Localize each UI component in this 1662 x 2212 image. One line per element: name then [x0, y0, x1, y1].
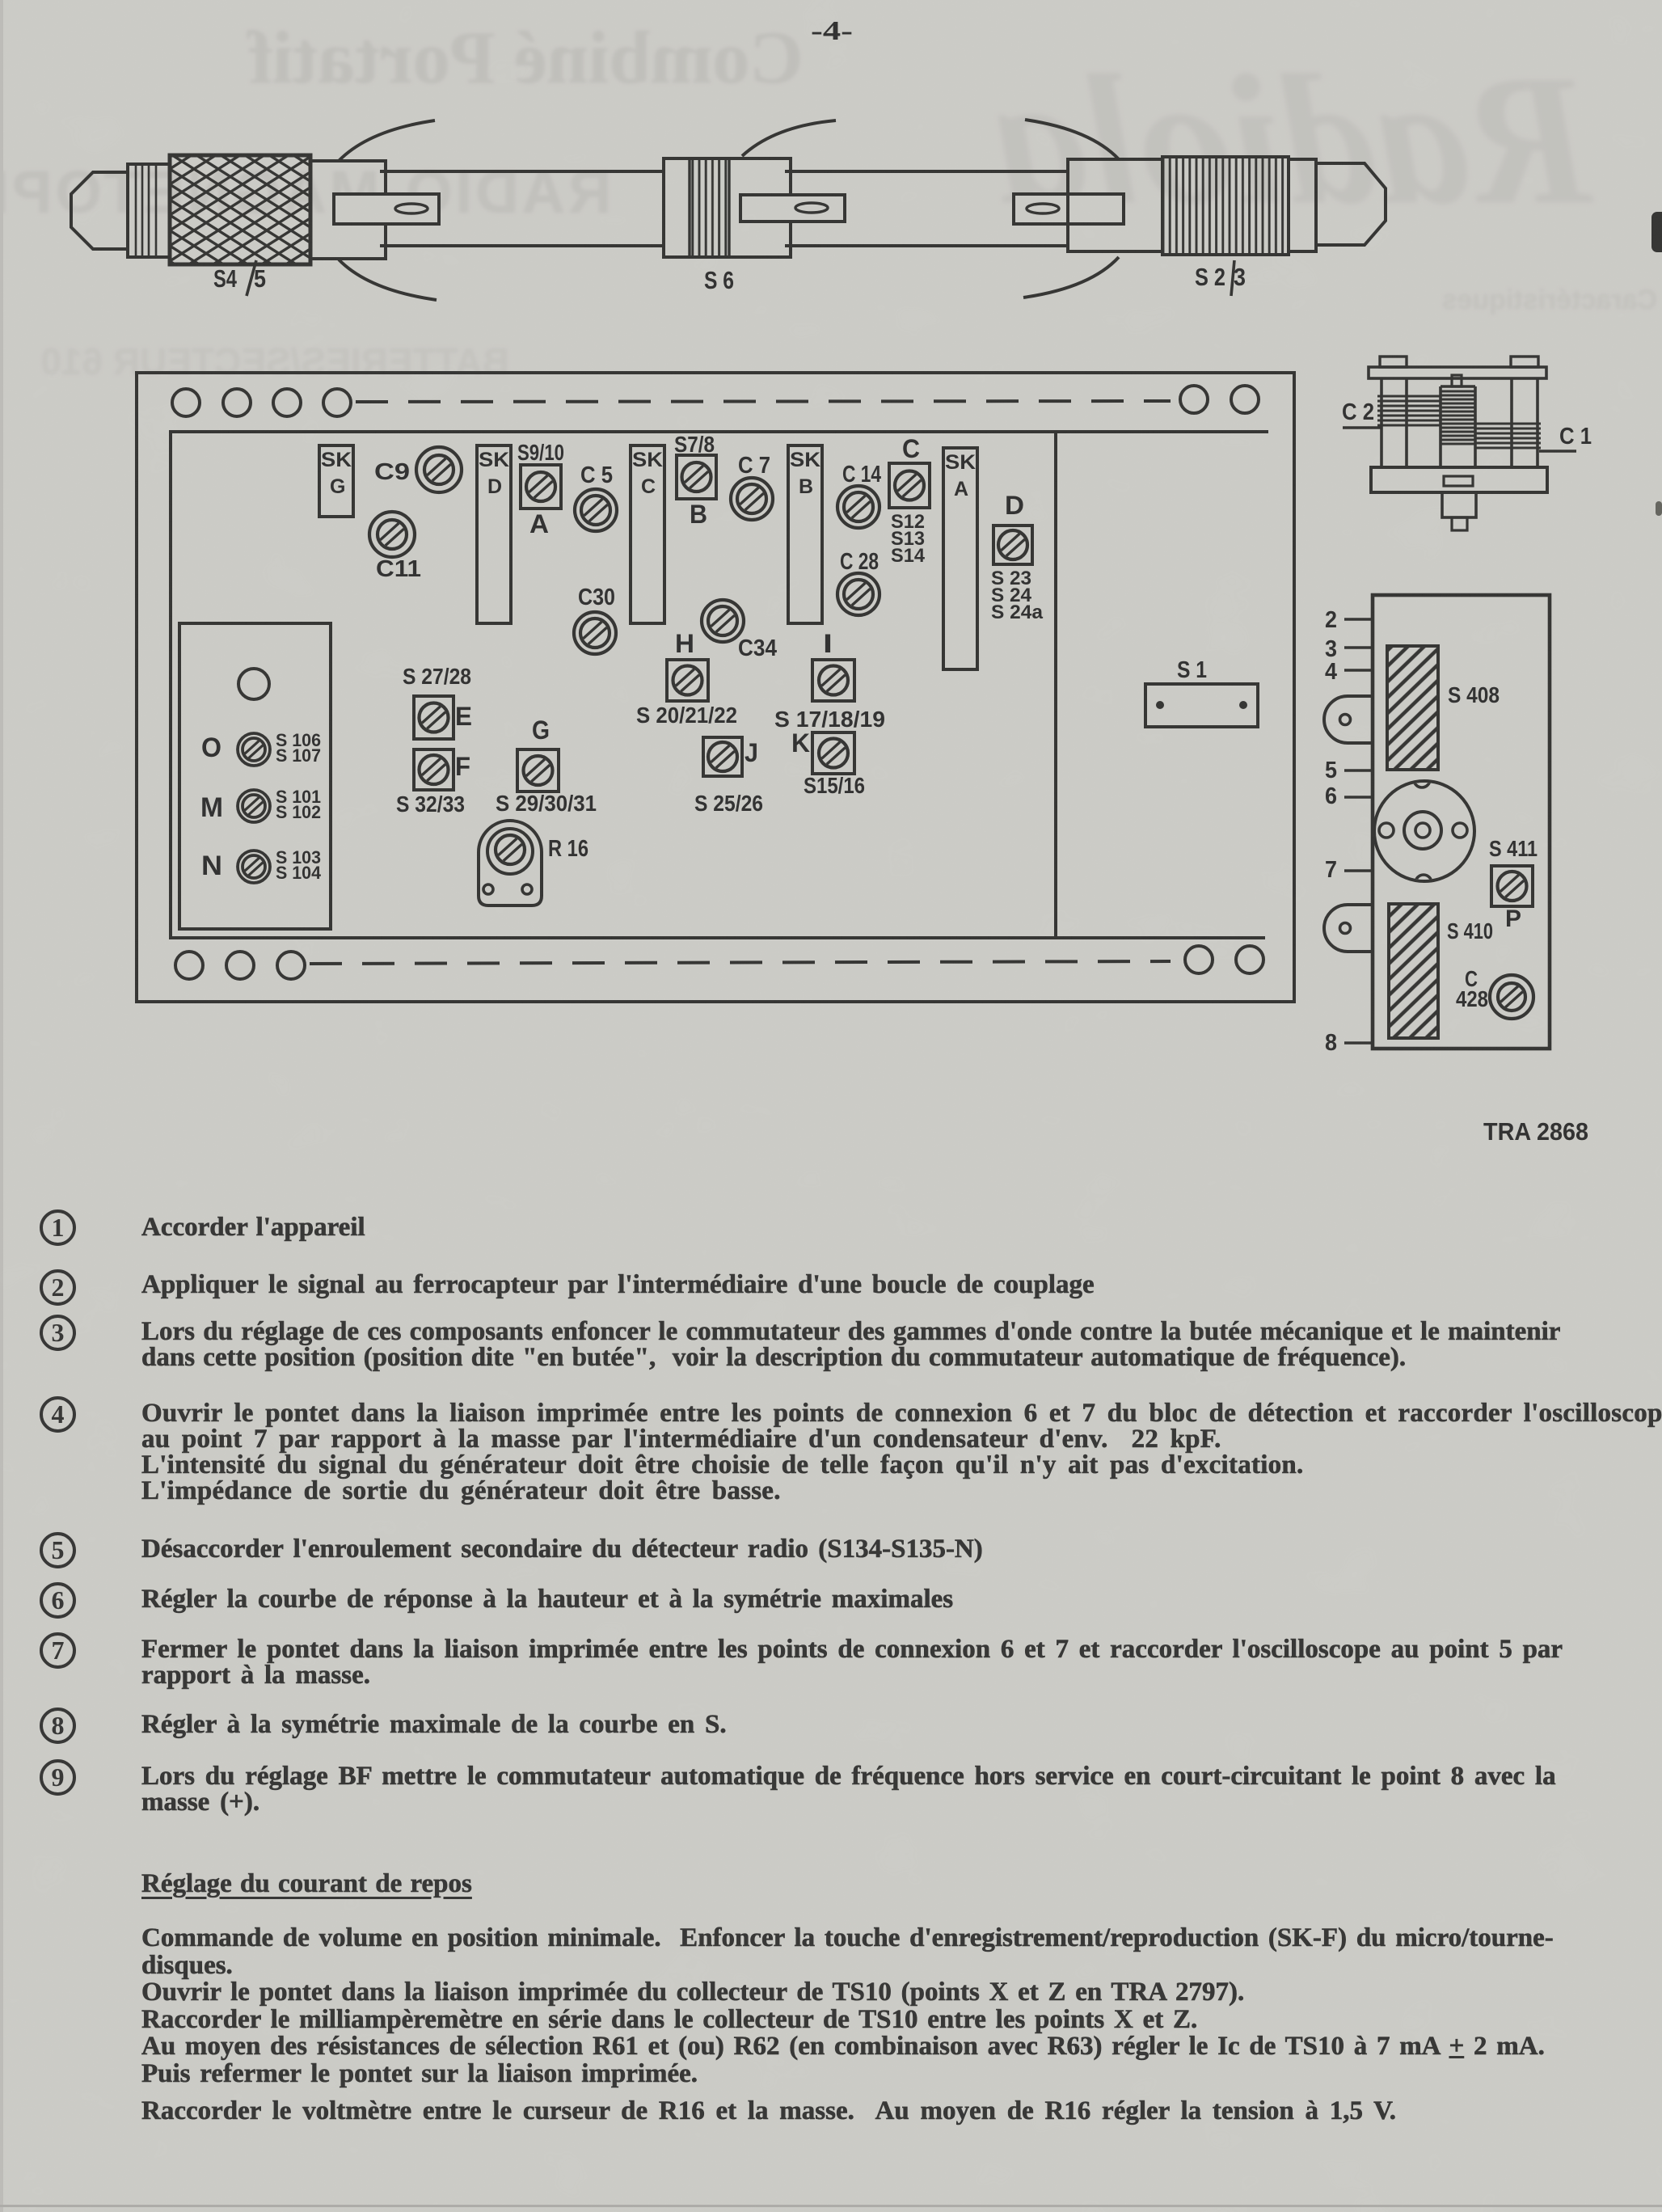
svg-text:S 20/21/22: S 20/21/22	[636, 703, 737, 728]
svg-text:2: 2	[1325, 607, 1337, 633]
svg-text:S 6: S 6	[704, 266, 734, 294]
svg-text:7: 7	[1325, 857, 1337, 883]
svg-text:C 14: C 14	[842, 462, 881, 488]
svg-text:K: K	[791, 728, 810, 758]
svg-text:S 24a: S 24a	[991, 602, 1044, 623]
svg-text:C 5: C 5	[580, 462, 613, 488]
svg-text:8: 8	[1325, 1030, 1337, 1056]
svg-text:-4-: -4-	[811, 16, 853, 46]
svg-text:C34: C34	[738, 635, 777, 661]
svg-text:S 410: S 410	[1447, 918, 1493, 943]
svg-text:S 2: S 2	[1195, 263, 1225, 291]
svg-text:I: I	[823, 629, 833, 658]
svg-text:S 408: S 408	[1448, 682, 1500, 707]
svg-text:D: D	[487, 475, 502, 498]
svg-text:E: E	[455, 702, 472, 731]
svg-text:S 411: S 411	[1489, 836, 1538, 861]
svg-text:C 1: C 1	[1559, 424, 1592, 450]
svg-text:J: J	[745, 738, 758, 767]
svg-text:S 107: S 107	[276, 745, 321, 766]
svg-text:C 7: C 7	[738, 453, 770, 479]
svg-text:5: 5	[254, 264, 266, 293]
svg-text:N: N	[201, 851, 222, 881]
svg-text:S 104: S 104	[276, 863, 322, 883]
svg-text:G: G	[532, 716, 550, 745]
svg-text:C9: C9	[374, 459, 410, 485]
svg-text:A: A	[954, 478, 968, 500]
svg-text:C 2: C 2	[1342, 399, 1374, 425]
svg-text:H: H	[675, 629, 694, 658]
svg-text:A: A	[529, 509, 549, 538]
svg-text:SK: SK	[321, 449, 352, 471]
svg-text:C 28: C 28	[840, 549, 879, 575]
svg-text:SK: SK	[790, 449, 820, 471]
svg-text:3: 3	[1234, 263, 1246, 291]
svg-text:S 102: S 102	[276, 802, 321, 822]
svg-text:F: F	[455, 752, 470, 781]
svg-text:B: B	[799, 475, 813, 498]
svg-text:S 27/28: S 27/28	[403, 664, 471, 689]
svg-text:S 32/33: S 32/33	[396, 792, 465, 817]
svg-text:S 25/26: S 25/26	[694, 791, 763, 816]
svg-text:S4: S4	[213, 264, 238, 293]
svg-text:6: 6	[1325, 783, 1337, 809]
svg-text:4: 4	[1325, 659, 1337, 685]
svg-text:D: D	[1005, 491, 1024, 520]
svg-text:S7/8: S7/8	[674, 432, 715, 457]
svg-text:SK: SK	[479, 449, 509, 471]
svg-text:428: 428	[1456, 986, 1488, 1011]
svg-text:C30: C30	[578, 585, 615, 610]
svg-text:B: B	[690, 500, 707, 529]
svg-text:5: 5	[1325, 758, 1337, 783]
svg-text:C: C	[641, 475, 656, 498]
svg-text:O: O	[201, 732, 221, 763]
svg-text:S14: S14	[891, 545, 926, 567]
svg-text:P: P	[1505, 905, 1521, 932]
svg-text:TRA 2868: TRA 2868	[1483, 1117, 1588, 1146]
svg-text:C11: C11	[376, 556, 421, 582]
svg-text:SK: SK	[632, 449, 663, 471]
svg-text:R 16: R 16	[548, 836, 588, 862]
svg-text:S 29/30/31: S 29/30/31	[496, 791, 597, 816]
svg-text:M: M	[200, 792, 223, 823]
svg-text:G: G	[330, 475, 345, 498]
svg-text:S 1: S 1	[1177, 657, 1207, 683]
svg-text:S9/10: S9/10	[517, 440, 564, 465]
svg-text:C: C	[902, 434, 920, 463]
svg-text:SK: SK	[945, 451, 976, 474]
svg-text:S15/16: S15/16	[804, 773, 865, 798]
